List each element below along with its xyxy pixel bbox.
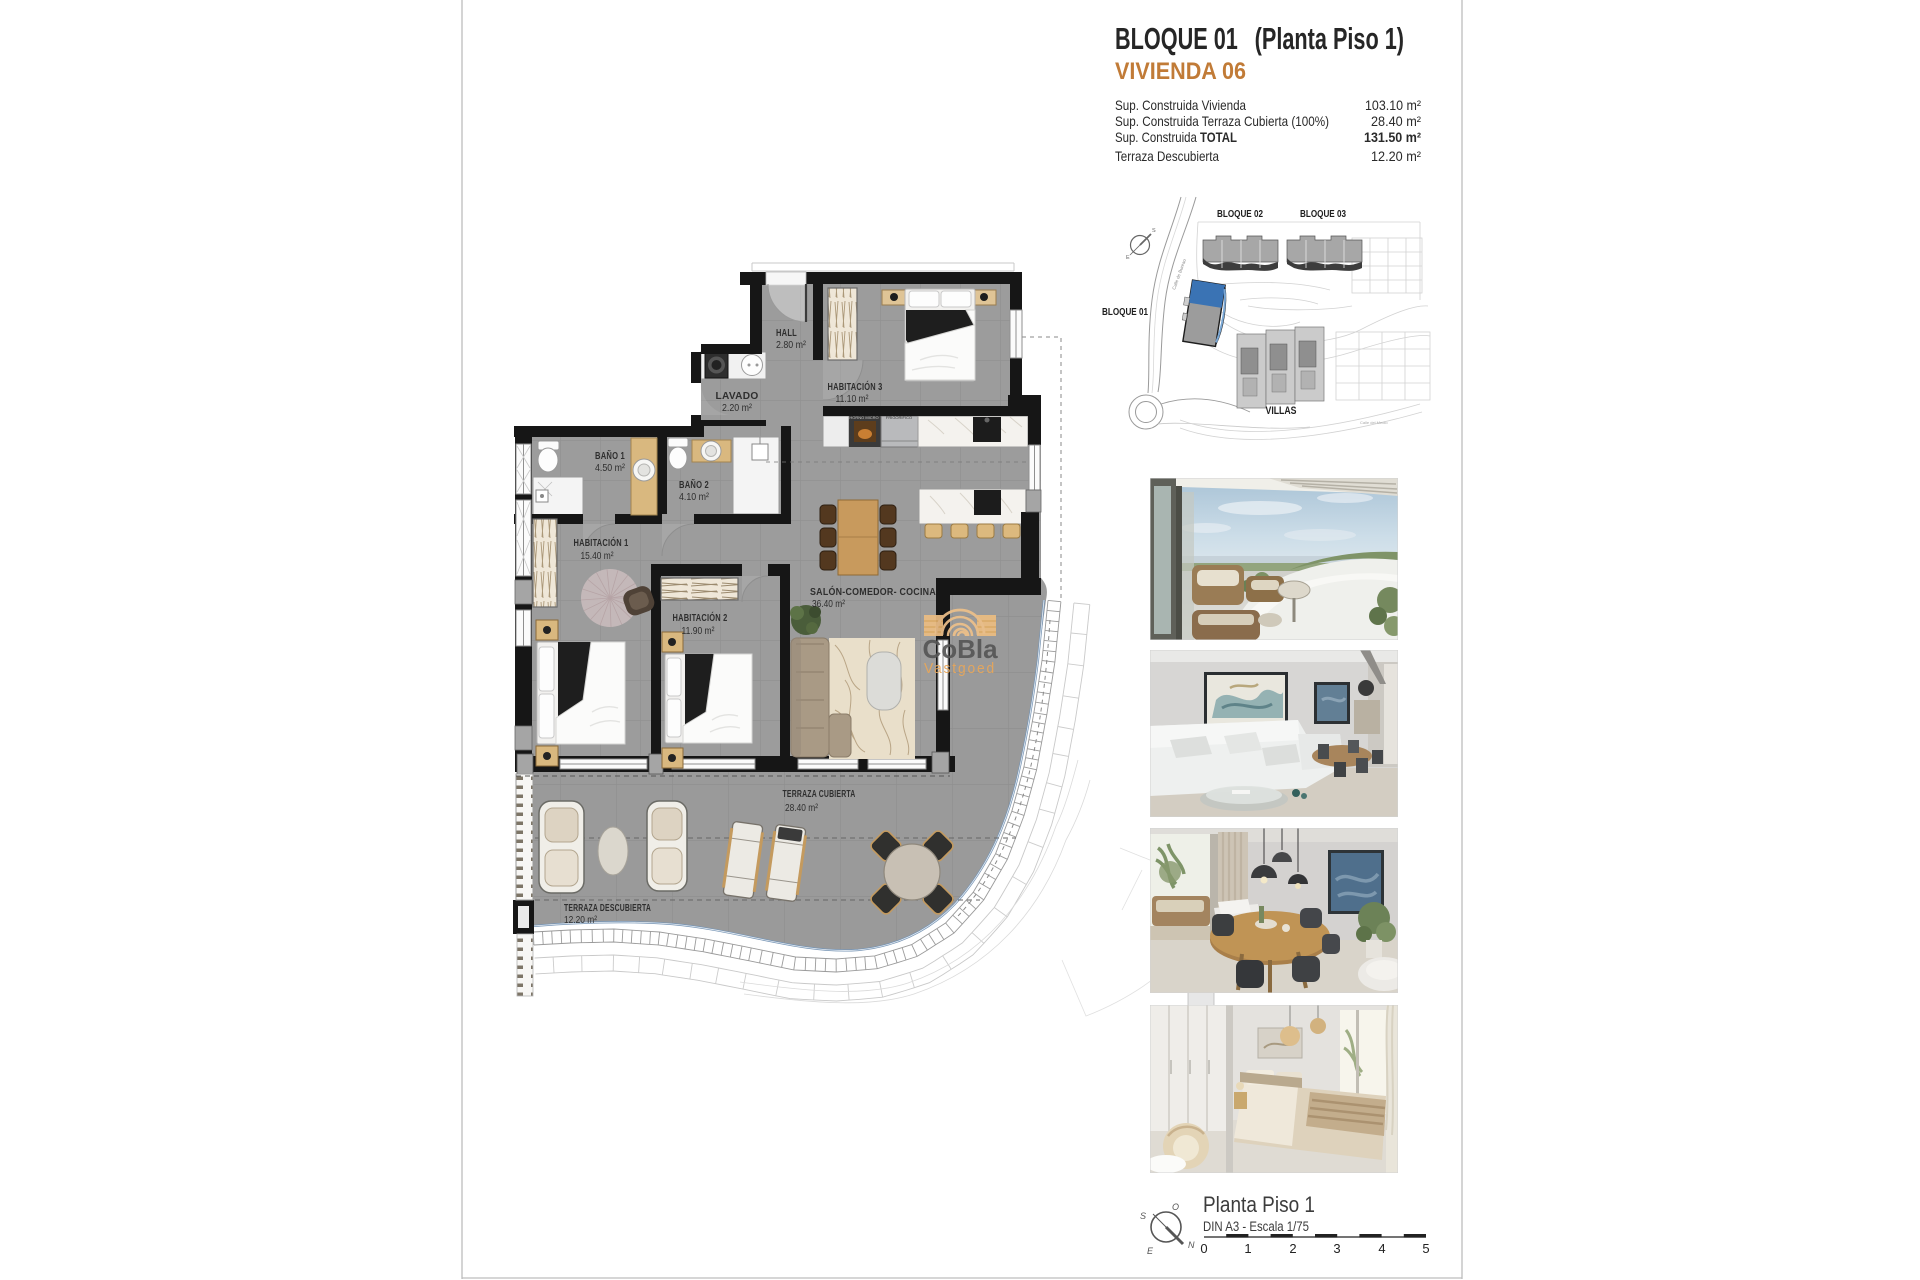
- svg-text:BLOQUE 01: BLOQUE 01: [1102, 306, 1148, 318]
- svg-text:TERRAZA DESCUBIERTA: TERRAZA DESCUBIERTA: [564, 902, 651, 914]
- svg-text:HABITACIÓN 1: HABITACIÓN 1: [574, 536, 629, 549]
- svg-text:3: 3: [1333, 1241, 1340, 1256]
- svg-text:5: 5: [1422, 1241, 1429, 1256]
- svg-text:131.50 m²: 131.50 m²: [1364, 129, 1421, 145]
- svg-text:E: E: [1126, 255, 1130, 261]
- svg-text:S: S: [1140, 1211, 1146, 1221]
- svg-text:TERRAZA CUBIERTA: TERRAZA CUBIERTA: [783, 788, 856, 800]
- svg-text:BLOQUE 01 (Planta Piso 1): BLOQUE 01 (Planta Piso 1): [1115, 21, 1404, 56]
- svg-text:2.80 m²: 2.80 m²: [776, 339, 806, 351]
- svg-text:11.10 m²: 11.10 m²: [836, 393, 869, 405]
- svg-text:LAVADO: LAVADO: [716, 390, 759, 402]
- svg-text:HABITACIÓN 2: HABITACIÓN 2: [673, 611, 728, 624]
- svg-text:2: 2: [1289, 1241, 1296, 1256]
- svg-text:Sup. Construida Vivienda: Sup. Construida Vivienda: [1115, 97, 1246, 113]
- svg-text:SALÓN-COMEDOR- COCINA: SALÓN-COMEDOR- COCINA: [810, 585, 936, 598]
- svg-text:2.20 m²: 2.20 m²: [722, 402, 752, 414]
- svg-text:Terraza Descubierta: Terraza Descubierta: [1115, 148, 1219, 164]
- svg-text:4.50 m²: 4.50 m²: [595, 462, 625, 474]
- svg-text:Planta Piso 1: Planta Piso 1: [1203, 1192, 1315, 1217]
- svg-text:4.10 m²: 4.10 m²: [679, 491, 709, 503]
- svg-text:11.90 m²: 11.90 m²: [682, 625, 715, 637]
- svg-text:BAÑO 1: BAÑO 1: [595, 449, 625, 462]
- svg-text:BLOQUE 03: BLOQUE 03: [1300, 208, 1346, 220]
- svg-text:HABITACIÓN 3: HABITACIÓN 3: [828, 380, 883, 393]
- svg-text:HALL: HALL: [776, 327, 797, 339]
- svg-text:4: 4: [1378, 1241, 1385, 1256]
- svg-text:Vastgoed: Vastgoed: [924, 660, 996, 677]
- svg-text:Calle del Medio: Calle del Medio: [1360, 420, 1388, 425]
- svg-text:Sup. Construida TOTAL: Sup. Construida TOTAL: [1115, 129, 1237, 145]
- svg-text:0: 0: [1200, 1241, 1207, 1256]
- svg-text:N: N: [1188, 1240, 1195, 1250]
- svg-text:Sup. Construida Terraza Cubier: Sup. Construida Terraza Cubierta (100%): [1115, 113, 1329, 129]
- svg-text:VIVIENDA 06: VIVIENDA 06: [1115, 58, 1246, 85]
- svg-text:1: 1: [1244, 1241, 1251, 1256]
- svg-text:E: E: [1147, 1246, 1154, 1256]
- svg-text:28.40 m²: 28.40 m²: [1371, 113, 1421, 129]
- svg-text:S: S: [1152, 228, 1156, 234]
- svg-text:O: O: [1172, 1202, 1179, 1212]
- svg-text:BAÑO 2: BAÑO 2: [679, 478, 709, 491]
- svg-text:36.40 m²: 36.40 m²: [812, 598, 845, 610]
- svg-text:DIN A3 - Escala 1/75: DIN A3 - Escala 1/75: [1203, 1219, 1309, 1234]
- svg-text:BLOQUE 02: BLOQUE 02: [1217, 208, 1263, 220]
- svg-text:VILLAS: VILLAS: [1266, 405, 1297, 417]
- svg-text:103.10 m²: 103.10 m²: [1365, 97, 1421, 113]
- svg-text:15.40 m²: 15.40 m²: [581, 550, 614, 562]
- svg-text:12.20 m²: 12.20 m²: [564, 914, 597, 926]
- svg-text:28.40 m²: 28.40 m²: [785, 802, 818, 814]
- svg-text:12.20 m²: 12.20 m²: [1371, 148, 1421, 164]
